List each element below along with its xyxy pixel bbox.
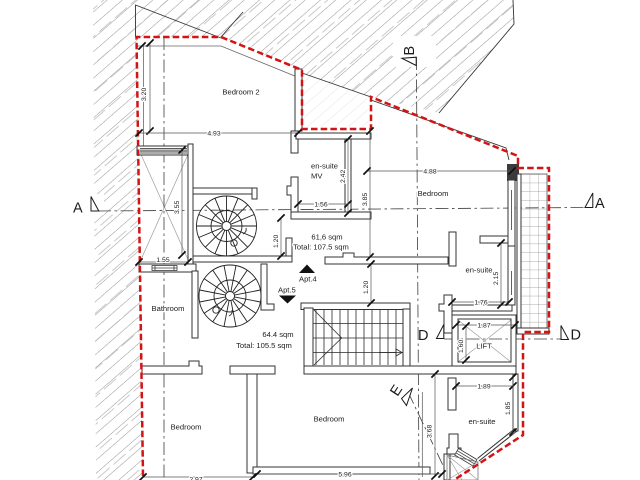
svg-text:Bedroom: Bedroom xyxy=(418,189,449,198)
svg-text:A: A xyxy=(73,201,83,217)
svg-text:64.4 sqm: 64.4 sqm xyxy=(262,330,293,339)
svg-text:2.97: 2.97 xyxy=(189,477,202,480)
svg-text:1.89: 1.89 xyxy=(477,383,490,390)
svg-text:4.93: 4.93 xyxy=(207,130,220,137)
svg-text:en-suite: en-suite xyxy=(311,162,338,171)
svg-text:4.88: 4.88 xyxy=(423,168,436,175)
svg-text:Bedroom: Bedroom xyxy=(314,415,345,424)
svg-text:MV: MV xyxy=(311,172,323,181)
svg-text:1.55: 1.55 xyxy=(156,257,169,264)
svg-text:2.42: 2.42 xyxy=(340,170,347,183)
svg-text:1.56: 1.56 xyxy=(314,201,327,208)
svg-text:1.76: 1.76 xyxy=(474,299,487,306)
svg-text:Total: 105.5 sqm: Total: 105.5 sqm xyxy=(236,341,292,350)
svg-text:Apt.4: Apt.4 xyxy=(299,275,317,284)
svg-text:1.85: 1.85 xyxy=(505,402,512,415)
svg-text:B: B xyxy=(402,46,418,56)
svg-text:Bathroom: Bathroom xyxy=(152,304,185,313)
svg-text:3.68: 3.68 xyxy=(427,425,434,438)
svg-text:1.87: 1.87 xyxy=(477,322,490,329)
svg-text:1.60: 1.60 xyxy=(458,340,465,353)
svg-text:Bedroom 2: Bedroom 2 xyxy=(222,88,259,97)
svg-text:Bedroom: Bedroom xyxy=(171,423,202,432)
svg-text:5.96: 5.96 xyxy=(338,471,351,478)
svg-text:en-suite: en-suite xyxy=(468,417,495,426)
svg-text:2.15: 2.15 xyxy=(493,272,500,285)
svg-text:en-suite: en-suite xyxy=(465,266,492,275)
svg-text:1.20: 1.20 xyxy=(273,235,280,248)
svg-text:LIFT: LIFT xyxy=(476,342,492,351)
svg-text:61,6 sqm: 61,6 sqm xyxy=(311,233,342,242)
svg-text:A: A xyxy=(595,196,605,212)
svg-text:3.20: 3.20 xyxy=(141,88,148,101)
svg-text:Total: 107.5 sqm: Total: 107.5 sqm xyxy=(293,243,349,252)
svg-text:3.55: 3.55 xyxy=(174,201,181,214)
svg-text:D: D xyxy=(418,328,428,344)
svg-text:D: D xyxy=(571,328,581,344)
svg-text:3.85: 3.85 xyxy=(362,193,369,206)
svg-text:1.20: 1.20 xyxy=(363,281,370,294)
svg-text:Apt.5: Apt.5 xyxy=(278,286,296,295)
